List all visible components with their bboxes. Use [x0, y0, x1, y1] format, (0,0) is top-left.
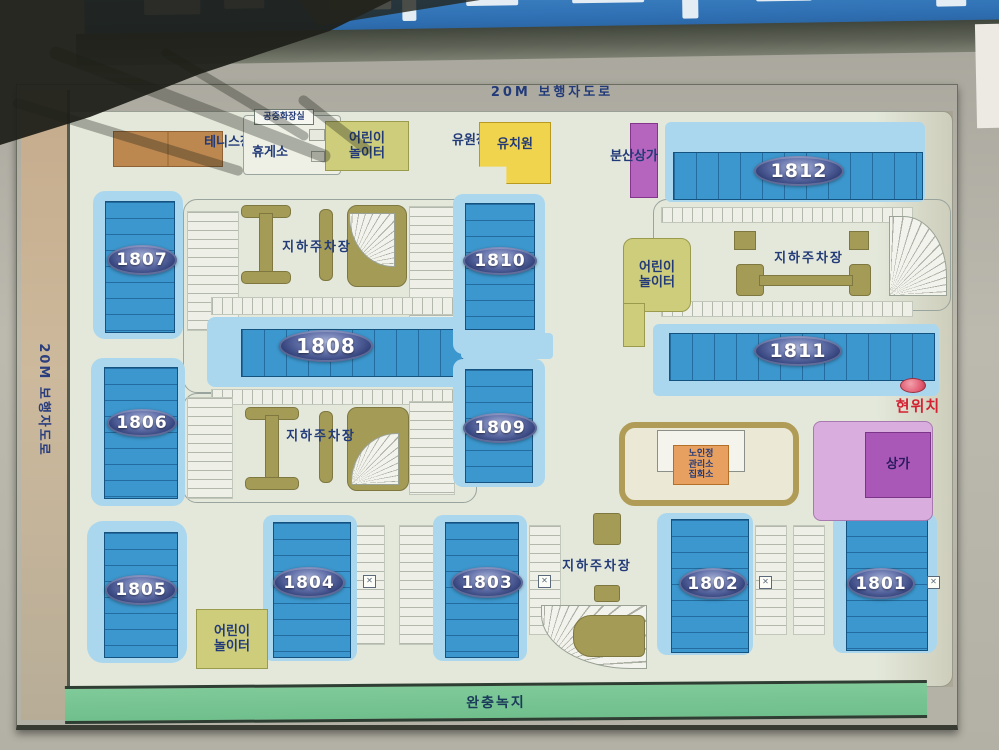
banner-letter-fragment [756, 0, 812, 1]
wall-highlight [975, 24, 999, 128]
building-1801-label: 1801 [847, 568, 915, 599]
banner-letter-fragment [572, 0, 644, 3]
banner-letter-fragment [936, 0, 966, 7]
building-1809-label: 1809 [463, 413, 537, 443]
current-location-label: 현위치 [883, 395, 953, 416]
building-1803-label: 1803 [451, 567, 523, 598]
building-1812-label: 1812 [754, 156, 844, 186]
parking-stalls [409, 401, 455, 495]
building-1807-label: 1807 [107, 245, 177, 275]
underground-parking-label: 지하주차장 [765, 251, 853, 266]
underground-parking-label: 지하주차장 [275, 240, 359, 255]
playground-right: 어린이 놀이터 [623, 238, 691, 312]
building-1811-label: 1811 [754, 336, 842, 366]
parking-ramp [594, 585, 620, 602]
senior-center-label-box: 노인정 관리소 집회소 [673, 445, 729, 485]
playground-label-line2: 놀이터 [214, 639, 250, 654]
parking-ramp [849, 231, 869, 250]
parking-ramp [241, 271, 291, 284]
senior-center-line1: 노인정 [689, 449, 714, 460]
service-marker: ✕ [759, 576, 772, 589]
underground-parking-label: 지하주차장 [279, 429, 363, 444]
parking-stalls [793, 525, 825, 635]
map-board: 20M 보행자도로 20M 보행자도로 테니스장 공중화장실 휴게소 [16, 84, 958, 730]
building-1806-label: 1806 [107, 409, 177, 437]
parking-stalls [187, 397, 233, 499]
senior-center-line3: 집회소 [689, 470, 714, 481]
parking-stalls [399, 525, 437, 645]
parking-ramp [759, 275, 853, 286]
playground-label-line1: 어린이 [214, 624, 250, 639]
senior-center-line2: 관리소 [689, 460, 714, 471]
playground-bottom: 어린이 놀이터 [196, 609, 268, 669]
service-marker: ✕ [927, 576, 940, 589]
parking-ramp [593, 513, 621, 545]
parking-stalls [661, 207, 913, 223]
playground-label-line1: 어린이 [639, 260, 675, 275]
building-1808-label: 1808 [279, 330, 373, 362]
parking-ramp [259, 213, 273, 277]
building-1810-label: 1810 [463, 247, 537, 275]
buffer-green-strip: 완충녹지 [65, 680, 927, 724]
building-1802-label: 1802 [679, 568, 747, 599]
site-map-sign-photo: 20M 보행자도로 20M 보행자도로 테니스장 공중화장실 휴게소 [0, 0, 999, 750]
parking-ramp [734, 231, 756, 250]
parking-ramp [245, 477, 299, 490]
service-marker: ✕ [538, 575, 551, 588]
building-1805-label: 1805 [105, 575, 177, 605]
left-road-strip: 20M 보행자도로 [21, 90, 70, 720]
parking-ramp [319, 411, 333, 483]
playground-right-extension [623, 303, 645, 347]
kindergarten-label: 유치원 [497, 137, 533, 152]
rest-area-table [309, 129, 325, 141]
top-road-label: 20M 보행자도로 [457, 85, 647, 105]
playground-label-line2: 놀이터 [639, 275, 675, 290]
dispersed-shopping-label: 분산상가 [595, 149, 673, 164]
parking-ramp [573, 615, 645, 657]
parking-ramp [265, 415, 279, 481]
shopping-center: 상가 [865, 432, 931, 498]
service-marker: ✕ [363, 575, 376, 588]
parking-stalls [661, 301, 913, 317]
left-road-label: 20M 보행자도로 [35, 340, 55, 460]
underground-parking-label: 지하주차장 [553, 559, 641, 574]
building-connector [461, 333, 553, 359]
current-location-pin [900, 378, 926, 393]
buffer-green-label: 완충녹지 [466, 692, 526, 712]
shopping-center-label: 상가 [886, 457, 910, 472]
banner-letter-fragment [682, 0, 699, 19]
building-1804-label: 1804 [273, 567, 345, 598]
